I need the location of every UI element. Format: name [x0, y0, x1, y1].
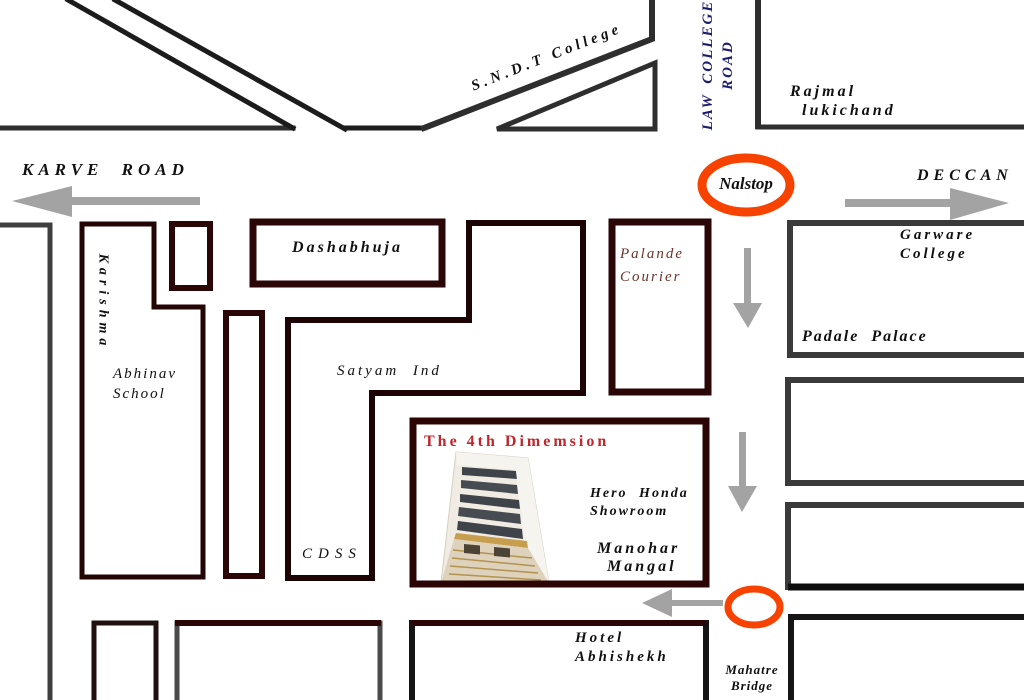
abhinav-label-line1: Abhinav — [113, 364, 177, 384]
small-block — [172, 224, 210, 288]
hotel-abhishekh-label: Hotel Abhishekh — [575, 629, 669, 667]
dashabhuja-label: Dashabhuja — [253, 238, 442, 257]
karve-road-label: KARVE ROAD — [22, 160, 189, 180]
bottom-block-1 — [94, 623, 156, 700]
deccan-east-arrow — [845, 188, 1009, 220]
hero-honda-label-line1: Hero Honda — [590, 485, 689, 503]
rajmal-label-line1: Rajmal — [790, 82, 896, 101]
abhinav-school-label: Abhinav School — [113, 364, 177, 404]
manohar-label-line2: Mangal — [597, 558, 680, 576]
nalstop-label: Nalstop — [700, 174, 792, 194]
padale-palace-label: Padale Palace — [802, 327, 928, 346]
palande-label-line2: Courier — [620, 266, 684, 289]
mahatre-label-line2: Bridge — [711, 678, 793, 694]
law-college-road-label: LAW COLLEGE ROAD — [698, 0, 742, 135]
route-arrow-south-2 — [728, 432, 757, 512]
law-college-road-label-line2: ROAD — [718, 0, 738, 135]
route-arrow-west — [642, 589, 723, 617]
diagonal-road-edge-2 — [115, 0, 345, 129]
right-block-2 — [788, 380, 1024, 483]
garware-label-line1: Garware — [900, 226, 975, 245]
narrow-block — [226, 313, 262, 576]
hotel-label-line2: Abhishekh — [575, 648, 669, 667]
garware-label-line2: College — [900, 245, 975, 264]
bottom-block-2 — [177, 623, 380, 700]
deccan-label: DECCAN — [917, 166, 1013, 185]
route-map: KARVE ROAD S.N.D.T College LAW COLLEGE R… — [0, 0, 1024, 700]
law-college-road-label-line1: LAW COLLEGE — [698, 0, 718, 135]
destination-title: The 4th Dimemsion — [424, 432, 609, 451]
manohar-label-line1: Manohar — [597, 540, 680, 558]
satyam-ind-label: Satyam Ind — [337, 362, 442, 380]
karve-road-west-arrow — [12, 186, 200, 217]
junction-highlight-ellipse — [728, 589, 780, 625]
manohar-mangal-label: Manohar Mangal — [597, 540, 680, 576]
right-block-4 — [791, 617, 1024, 700]
cdss-label: CDSS — [302, 545, 362, 563]
palande-courier-label: Palande Courier — [620, 243, 684, 289]
right-block-3 — [788, 505, 1024, 587]
diagonal-road-edge-1 — [68, 0, 293, 128]
hero-honda-label-line2: Showroom — [590, 503, 689, 521]
route-arrow-south-1 — [733, 248, 762, 328]
rajmal-lukichand-label: Rajmal lukichand — [790, 82, 896, 120]
abhinav-label-line2: School — [113, 384, 177, 404]
mahatre-label-line1: Mahatre — [711, 662, 793, 678]
hotel-label-line1: Hotel — [575, 629, 669, 648]
garware-college-label: Garware College — [900, 226, 975, 264]
rajmal-label-line2: lukichand — [790, 101, 896, 120]
karishma-label: Karishma — [85, 240, 111, 365]
mahatre-bridge-label: Mahatre Bridge — [711, 662, 793, 694]
left-edge-block — [0, 225, 50, 700]
palande-label-line1: Palande — [620, 243, 684, 266]
hero-honda-showroom-label: Hero Honda Showroom — [590, 485, 689, 521]
